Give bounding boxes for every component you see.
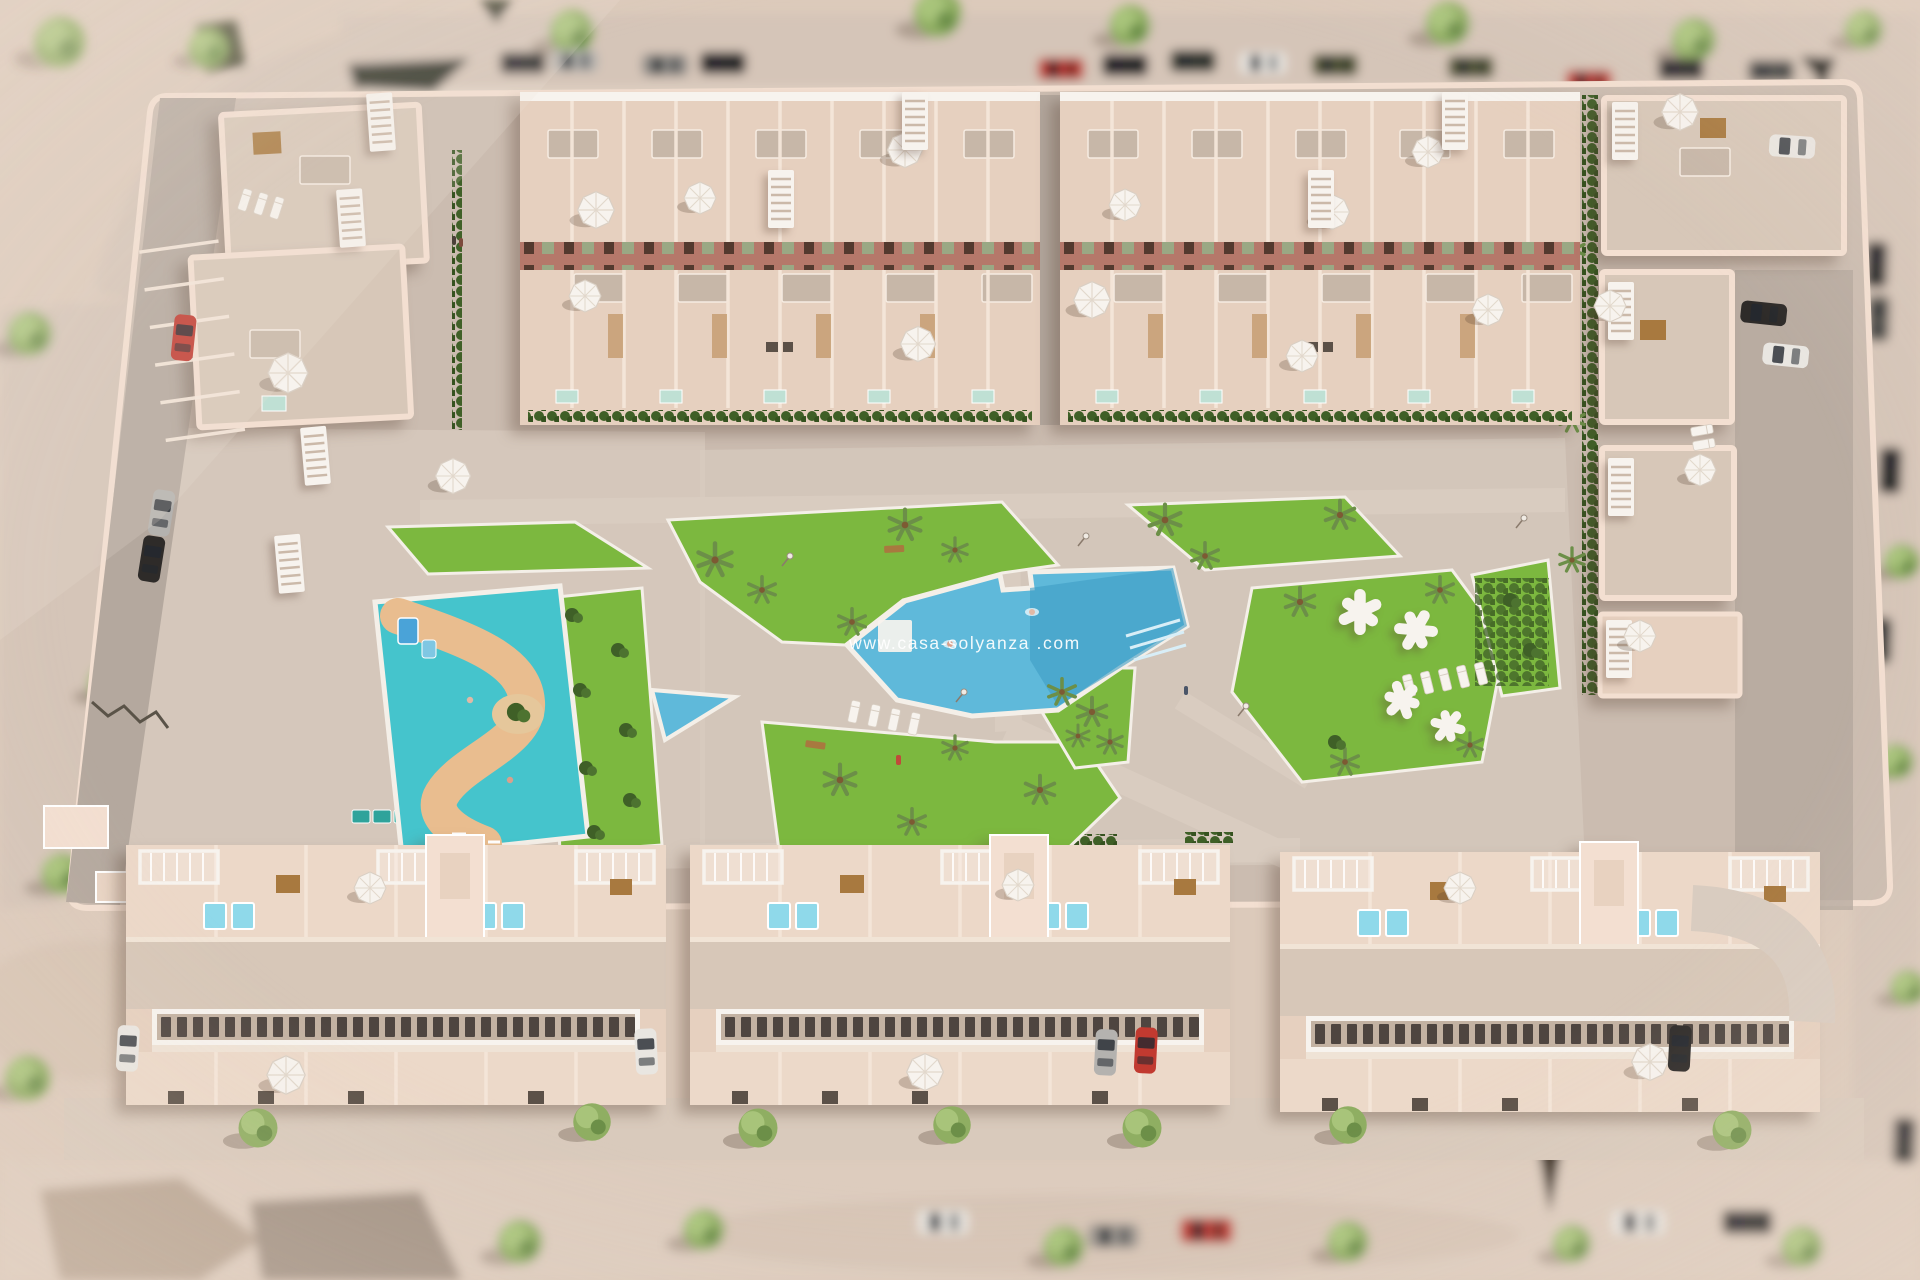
watermark-text: www.casa-solyanza .com: [848, 633, 1081, 653]
aerial-render-scene: www.casa-solyanza .com: [0, 0, 1920, 1280]
render-canvas: www.casa-solyanza .com: [0, 0, 1920, 1280]
